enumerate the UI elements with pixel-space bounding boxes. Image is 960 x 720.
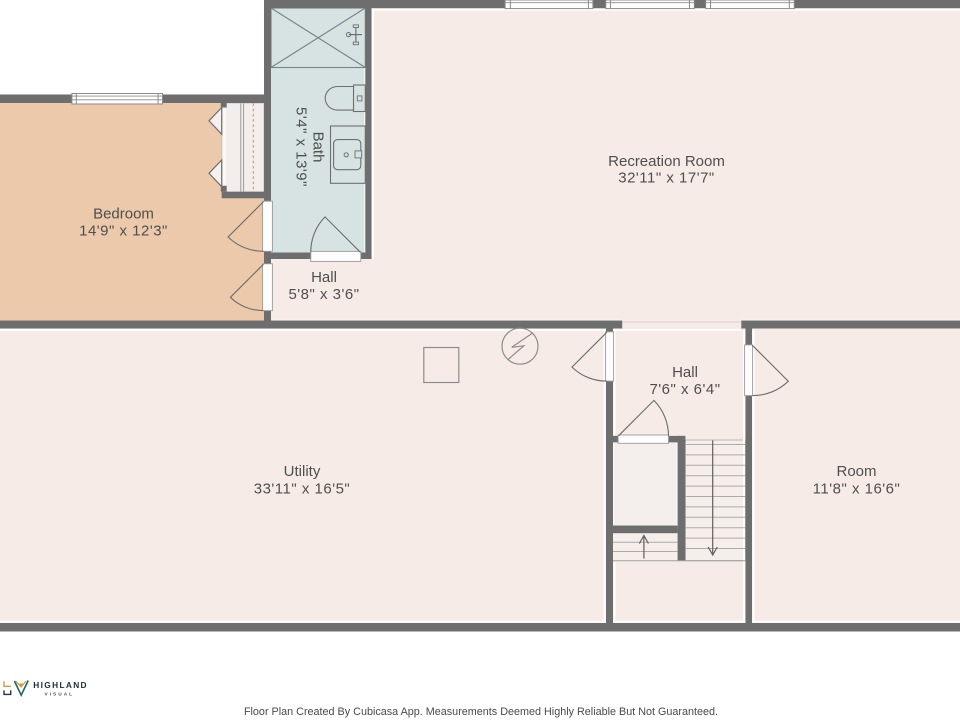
svg-text:7'6" x 6'4": 7'6" x 6'4" [649, 381, 720, 398]
svg-text:5'4" x 13'9": 5'4" x 13'9" [293, 107, 310, 187]
svg-text:Hall: Hall [311, 269, 337, 286]
svg-text:Room: Room [836, 463, 876, 480]
svg-text:VISUAL: VISUAL [45, 691, 75, 697]
svg-text:Recreation Room: Recreation Room [608, 153, 725, 170]
svg-text:32'11" x 17'7": 32'11" x 17'7" [618, 170, 715, 187]
svg-text:Hall: Hall [672, 364, 698, 381]
svg-text:Floor Plan Created By Cubicasa: Floor Plan Created By Cubicasa App. Meas… [244, 706, 718, 718]
svg-text:Bedroom: Bedroom [93, 206, 154, 223]
svg-text:33'11" x 16'5": 33'11" x 16'5" [254, 481, 351, 498]
svg-text:HIGHLAND: HIGHLAND [33, 680, 88, 690]
svg-text:Utility: Utility [284, 463, 321, 480]
svg-text:Bath: Bath [310, 132, 327, 163]
svg-text:14'9" x 12'3": 14'9" x 12'3" [79, 223, 168, 240]
svg-text:5'8" x 3'6": 5'8" x 3'6" [288, 286, 359, 303]
svg-text:11'8" x 16'6": 11'8" x 16'6" [813, 481, 901, 498]
